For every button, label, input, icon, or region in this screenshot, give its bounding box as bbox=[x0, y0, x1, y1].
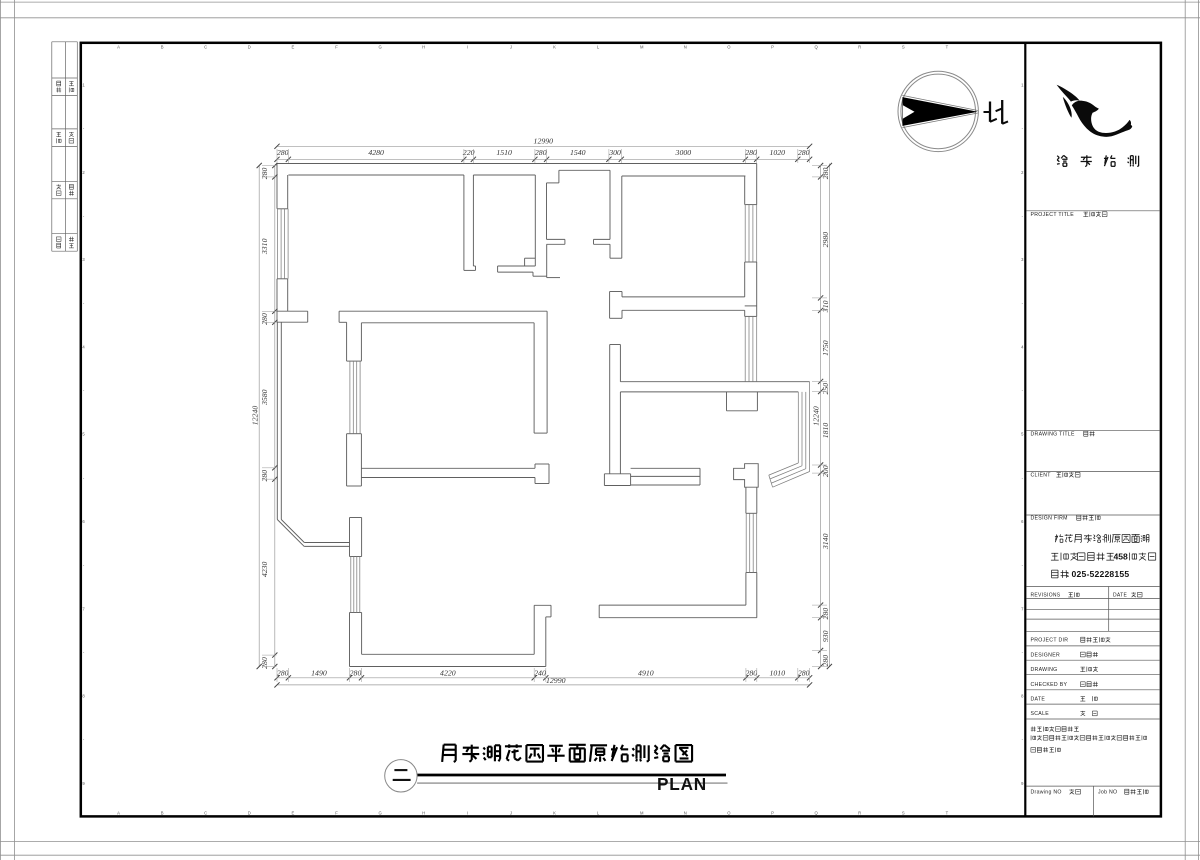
svg-text:1010: 1010 bbox=[770, 668, 786, 677]
svg-text:S: S bbox=[902, 44, 905, 49]
svg-text:280: 280 bbox=[277, 148, 289, 157]
svg-text:3000: 3000 bbox=[675, 148, 692, 157]
svg-text:F: F bbox=[335, 44, 338, 49]
svg-text:T: T bbox=[946, 44, 949, 49]
svg-text:3580: 3580 bbox=[260, 389, 269, 406]
svg-text:280: 280 bbox=[821, 655, 830, 667]
svg-text:280: 280 bbox=[260, 313, 269, 325]
svg-text:E: E bbox=[292, 810, 295, 815]
svg-text:3310: 3310 bbox=[260, 238, 269, 255]
svg-text:1490: 1490 bbox=[311, 668, 327, 677]
svg-text:B: B bbox=[161, 44, 164, 49]
svg-text:M: M bbox=[640, 44, 644, 49]
svg-text:K: K bbox=[553, 810, 556, 815]
svg-text:280: 280 bbox=[260, 167, 269, 179]
svg-text:310: 310 bbox=[821, 300, 830, 313]
svg-text::: : bbox=[1067, 569, 1070, 579]
svg-text:H: H bbox=[422, 44, 425, 49]
svg-text:3140: 3140 bbox=[821, 533, 830, 550]
svg-text:DATE: DATE bbox=[1031, 697, 1046, 703]
svg-text:T: T bbox=[946, 810, 949, 815]
svg-text:1540: 1540 bbox=[570, 148, 586, 157]
svg-text:S: S bbox=[902, 810, 905, 815]
svg-text:DESIGNER: DESIGNER bbox=[1031, 652, 1061, 658]
svg-text:G: G bbox=[378, 44, 381, 49]
svg-text:K: K bbox=[553, 44, 556, 49]
svg-text:I: I bbox=[467, 810, 468, 815]
svg-text:280: 280 bbox=[260, 657, 269, 669]
svg-text:12240: 12240 bbox=[812, 406, 821, 426]
svg-text:DRAWING: DRAWING bbox=[1031, 667, 1058, 673]
svg-text:R: R bbox=[858, 44, 861, 49]
svg-text:J: J bbox=[510, 44, 512, 49]
svg-text:B: B bbox=[161, 810, 164, 815]
svg-text:F: F bbox=[335, 810, 338, 815]
svg-text:1810: 1810 bbox=[821, 423, 830, 439]
svg-text:280: 280 bbox=[821, 167, 830, 179]
svg-text:Drawing NO: Drawing NO bbox=[1031, 790, 1062, 796]
svg-text:CLIENT: CLIENT bbox=[1031, 473, 1052, 479]
svg-text:H: H bbox=[422, 810, 425, 815]
svg-text:CHECKED BY: CHECKED BY bbox=[1031, 682, 1068, 688]
svg-text:N: N bbox=[684, 810, 687, 815]
svg-text:12990: 12990 bbox=[546, 676, 566, 685]
svg-text:Job NO: Job NO bbox=[1098, 790, 1117, 796]
svg-text:1510: 1510 bbox=[496, 148, 512, 157]
svg-text:12990: 12990 bbox=[534, 137, 554, 146]
svg-text:4280: 4280 bbox=[368, 148, 384, 157]
svg-text:P: P bbox=[771, 810, 774, 815]
svg-text:M: M bbox=[640, 810, 644, 815]
svg-text:930: 930 bbox=[821, 630, 830, 642]
svg-text:J: J bbox=[510, 810, 512, 815]
svg-text:D: D bbox=[248, 810, 251, 815]
svg-text:280: 280 bbox=[798, 148, 810, 157]
svg-text:1020: 1020 bbox=[769, 148, 785, 157]
svg-text:SCALE: SCALE bbox=[1031, 711, 1050, 717]
svg-text:PROJECT TITLE: PROJECT TITLE bbox=[1031, 212, 1075, 218]
svg-text:458: 458 bbox=[1114, 552, 1129, 562]
svg-text:280: 280 bbox=[745, 148, 757, 157]
svg-text:240: 240 bbox=[534, 668, 546, 677]
svg-text:280: 280 bbox=[260, 470, 269, 482]
svg-text:4220: 4220 bbox=[440, 668, 456, 677]
svg-text:300: 300 bbox=[608, 148, 621, 157]
svg-text:200: 200 bbox=[821, 465, 830, 477]
svg-text:REVISIONS: REVISIONS bbox=[1031, 593, 1061, 599]
svg-text:250: 250 bbox=[821, 383, 830, 395]
svg-text:I: I bbox=[467, 44, 468, 49]
svg-text:025-52228155: 025-52228155 bbox=[1072, 569, 1130, 579]
svg-text:1750: 1750 bbox=[821, 340, 830, 356]
svg-text:4230: 4230 bbox=[260, 561, 269, 577]
svg-text:C: C bbox=[204, 44, 207, 49]
svg-text:E: E bbox=[292, 44, 295, 49]
svg-text:A: A bbox=[117, 44, 120, 49]
svg-text:220: 220 bbox=[463, 148, 475, 157]
svg-text:280: 280 bbox=[350, 668, 362, 677]
svg-text:12240: 12240 bbox=[251, 406, 260, 426]
svg-text:DESIGN FIRM: DESIGN FIRM bbox=[1031, 516, 1068, 522]
svg-text:D: D bbox=[248, 44, 251, 49]
svg-text:C: C bbox=[204, 810, 207, 815]
svg-text:R: R bbox=[858, 810, 861, 815]
svg-text:280: 280 bbox=[535, 148, 547, 157]
svg-text:280: 280 bbox=[277, 668, 289, 677]
svg-text:N: N bbox=[684, 44, 687, 49]
svg-text:280: 280 bbox=[745, 668, 757, 677]
svg-text:4910: 4910 bbox=[638, 668, 654, 677]
svg-text:280: 280 bbox=[798, 668, 810, 677]
svg-text:2980: 2980 bbox=[821, 232, 830, 248]
svg-text:A: A bbox=[117, 810, 120, 815]
svg-text:DRAWING TITLE: DRAWING TITLE bbox=[1031, 432, 1075, 438]
svg-text:DATE: DATE bbox=[1113, 593, 1128, 599]
svg-text:G: G bbox=[378, 810, 381, 815]
svg-text:PROJECT DIR: PROJECT DIR bbox=[1031, 638, 1069, 644]
svg-text:PLAN: PLAN bbox=[657, 774, 707, 794]
svg-text:P: P bbox=[771, 44, 774, 49]
